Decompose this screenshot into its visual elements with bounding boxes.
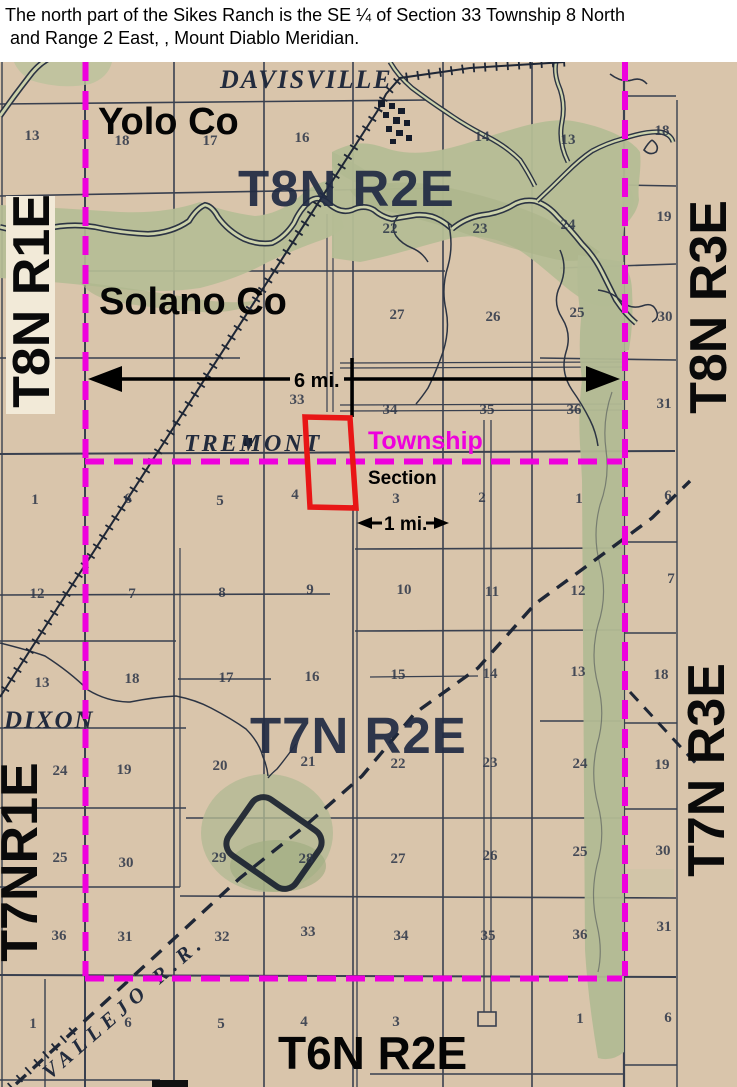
svg-text:27: 27 — [391, 851, 407, 867]
svg-text:31: 31 — [657, 919, 672, 935]
svg-text:DIXON: DIXON — [3, 707, 95, 734]
svg-text:T7N R2E: T7N R2E — [250, 707, 467, 764]
svg-text:30: 30 — [658, 309, 673, 325]
svg-text:19: 19 — [655, 757, 670, 773]
svg-text:29: 29 — [212, 850, 227, 866]
svg-text:20: 20 — [213, 758, 228, 774]
svg-text:T6N R2E: T6N R2E — [278, 1027, 467, 1079]
svg-text:25: 25 — [53, 850, 68, 866]
svg-text:24: 24 — [561, 217, 577, 233]
svg-text:3: 3 — [392, 491, 400, 507]
svg-text:30: 30 — [656, 843, 671, 859]
svg-text:13: 13 — [571, 664, 586, 680]
svg-text:28: 28 — [299, 851, 314, 867]
svg-text:4: 4 — [291, 487, 299, 503]
svg-text:5: 5 — [216, 493, 224, 509]
svg-text:2: 2 — [478, 490, 486, 506]
svg-text:25: 25 — [570, 305, 585, 321]
svg-text:26: 26 — [483, 848, 499, 864]
svg-text:7: 7 — [128, 586, 136, 602]
svg-text:TREMONT: TREMONT — [184, 431, 322, 457]
svg-text:Solano Co: Solano Co — [99, 281, 287, 323]
svg-text:32: 32 — [215, 929, 230, 945]
svg-text:35: 35 — [481, 928, 496, 944]
svg-text:5: 5 — [217, 1016, 225, 1032]
svg-text:18: 18 — [655, 123, 670, 139]
svg-text:T8N R3E: T8N R3E — [680, 200, 737, 414]
svg-text:24: 24 — [573, 756, 589, 772]
svg-text:22: 22 — [391, 756, 406, 772]
svg-text:31: 31 — [657, 396, 672, 412]
svg-text:23: 23 — [483, 755, 498, 771]
svg-text:16: 16 — [305, 669, 321, 685]
svg-text:31: 31 — [118, 929, 133, 945]
svg-text:36: 36 — [573, 927, 589, 943]
svg-text:6 mi.: 6 mi. — [294, 370, 340, 392]
svg-text:22: 22 — [383, 221, 398, 237]
svg-text:12: 12 — [30, 586, 45, 602]
svg-text:18: 18 — [654, 667, 669, 683]
svg-text:14: 14 — [483, 666, 499, 682]
svg-text:1: 1 — [576, 1011, 584, 1027]
svg-text:and Range 2 East, , Mount Diab: and Range 2 East, , Mount Diablo Meridia… — [5, 28, 359, 48]
svg-text:11: 11 — [485, 584, 499, 600]
svg-text:36: 36 — [52, 928, 68, 944]
svg-text:T8N R1E: T8N R1E — [3, 194, 61, 408]
svg-text:6: 6 — [124, 1015, 132, 1031]
svg-text:1 mi.: 1 mi. — [384, 514, 427, 535]
svg-text:35: 35 — [480, 402, 495, 418]
svg-text:33: 33 — [290, 392, 305, 408]
svg-text:18: 18 — [125, 671, 140, 687]
svg-text:7: 7 — [667, 571, 675, 587]
svg-text:T7NR1E: T7NR1E — [0, 762, 49, 961]
svg-text:Township: Township — [368, 427, 483, 455]
svg-text:24: 24 — [53, 763, 69, 779]
svg-text:12: 12 — [571, 583, 586, 599]
svg-text:Section: Section — [368, 468, 437, 489]
svg-text:6: 6 — [664, 488, 672, 504]
svg-text:14: 14 — [475, 129, 491, 145]
svg-text:The north part of the Sikes Ra: The north part of the Sikes Ranch is the… — [5, 5, 625, 25]
svg-text:13: 13 — [561, 132, 576, 148]
svg-text:36: 36 — [567, 402, 583, 418]
svg-text:1: 1 — [31, 492, 39, 508]
svg-text:13: 13 — [25, 128, 40, 144]
svg-text:25: 25 — [573, 844, 588, 860]
svg-text:23: 23 — [473, 221, 488, 237]
svg-text:34: 34 — [383, 402, 399, 418]
svg-text:16: 16 — [295, 130, 311, 146]
svg-text:15: 15 — [391, 667, 406, 683]
svg-text:10: 10 — [397, 582, 412, 598]
svg-text:19: 19 — [657, 209, 672, 225]
svg-text:1: 1 — [575, 491, 583, 507]
svg-text:9: 9 — [306, 582, 314, 598]
svg-text:T7N R3E: T7N R3E — [678, 663, 736, 877]
svg-text:DAVISVILLE: DAVISVILLE — [219, 65, 393, 94]
svg-text:6: 6 — [124, 491, 132, 507]
svg-text:27: 27 — [390, 307, 406, 323]
svg-text:Yolo Co: Yolo Co — [98, 101, 239, 143]
svg-text:13: 13 — [35, 675, 50, 691]
svg-text:8: 8 — [218, 585, 226, 601]
svg-text:19: 19 — [117, 762, 132, 778]
svg-text:34: 34 — [394, 928, 410, 944]
svg-text:17: 17 — [219, 670, 235, 686]
svg-text:26: 26 — [486, 309, 502, 325]
svg-text:30: 30 — [119, 855, 134, 871]
svg-text:21: 21 — [301, 754, 316, 770]
svg-text:T8N R2E: T8N R2E — [238, 160, 455, 217]
svg-text:33: 33 — [301, 924, 316, 940]
svg-text:6: 6 — [664, 1010, 672, 1026]
svg-text:1: 1 — [29, 1016, 37, 1032]
